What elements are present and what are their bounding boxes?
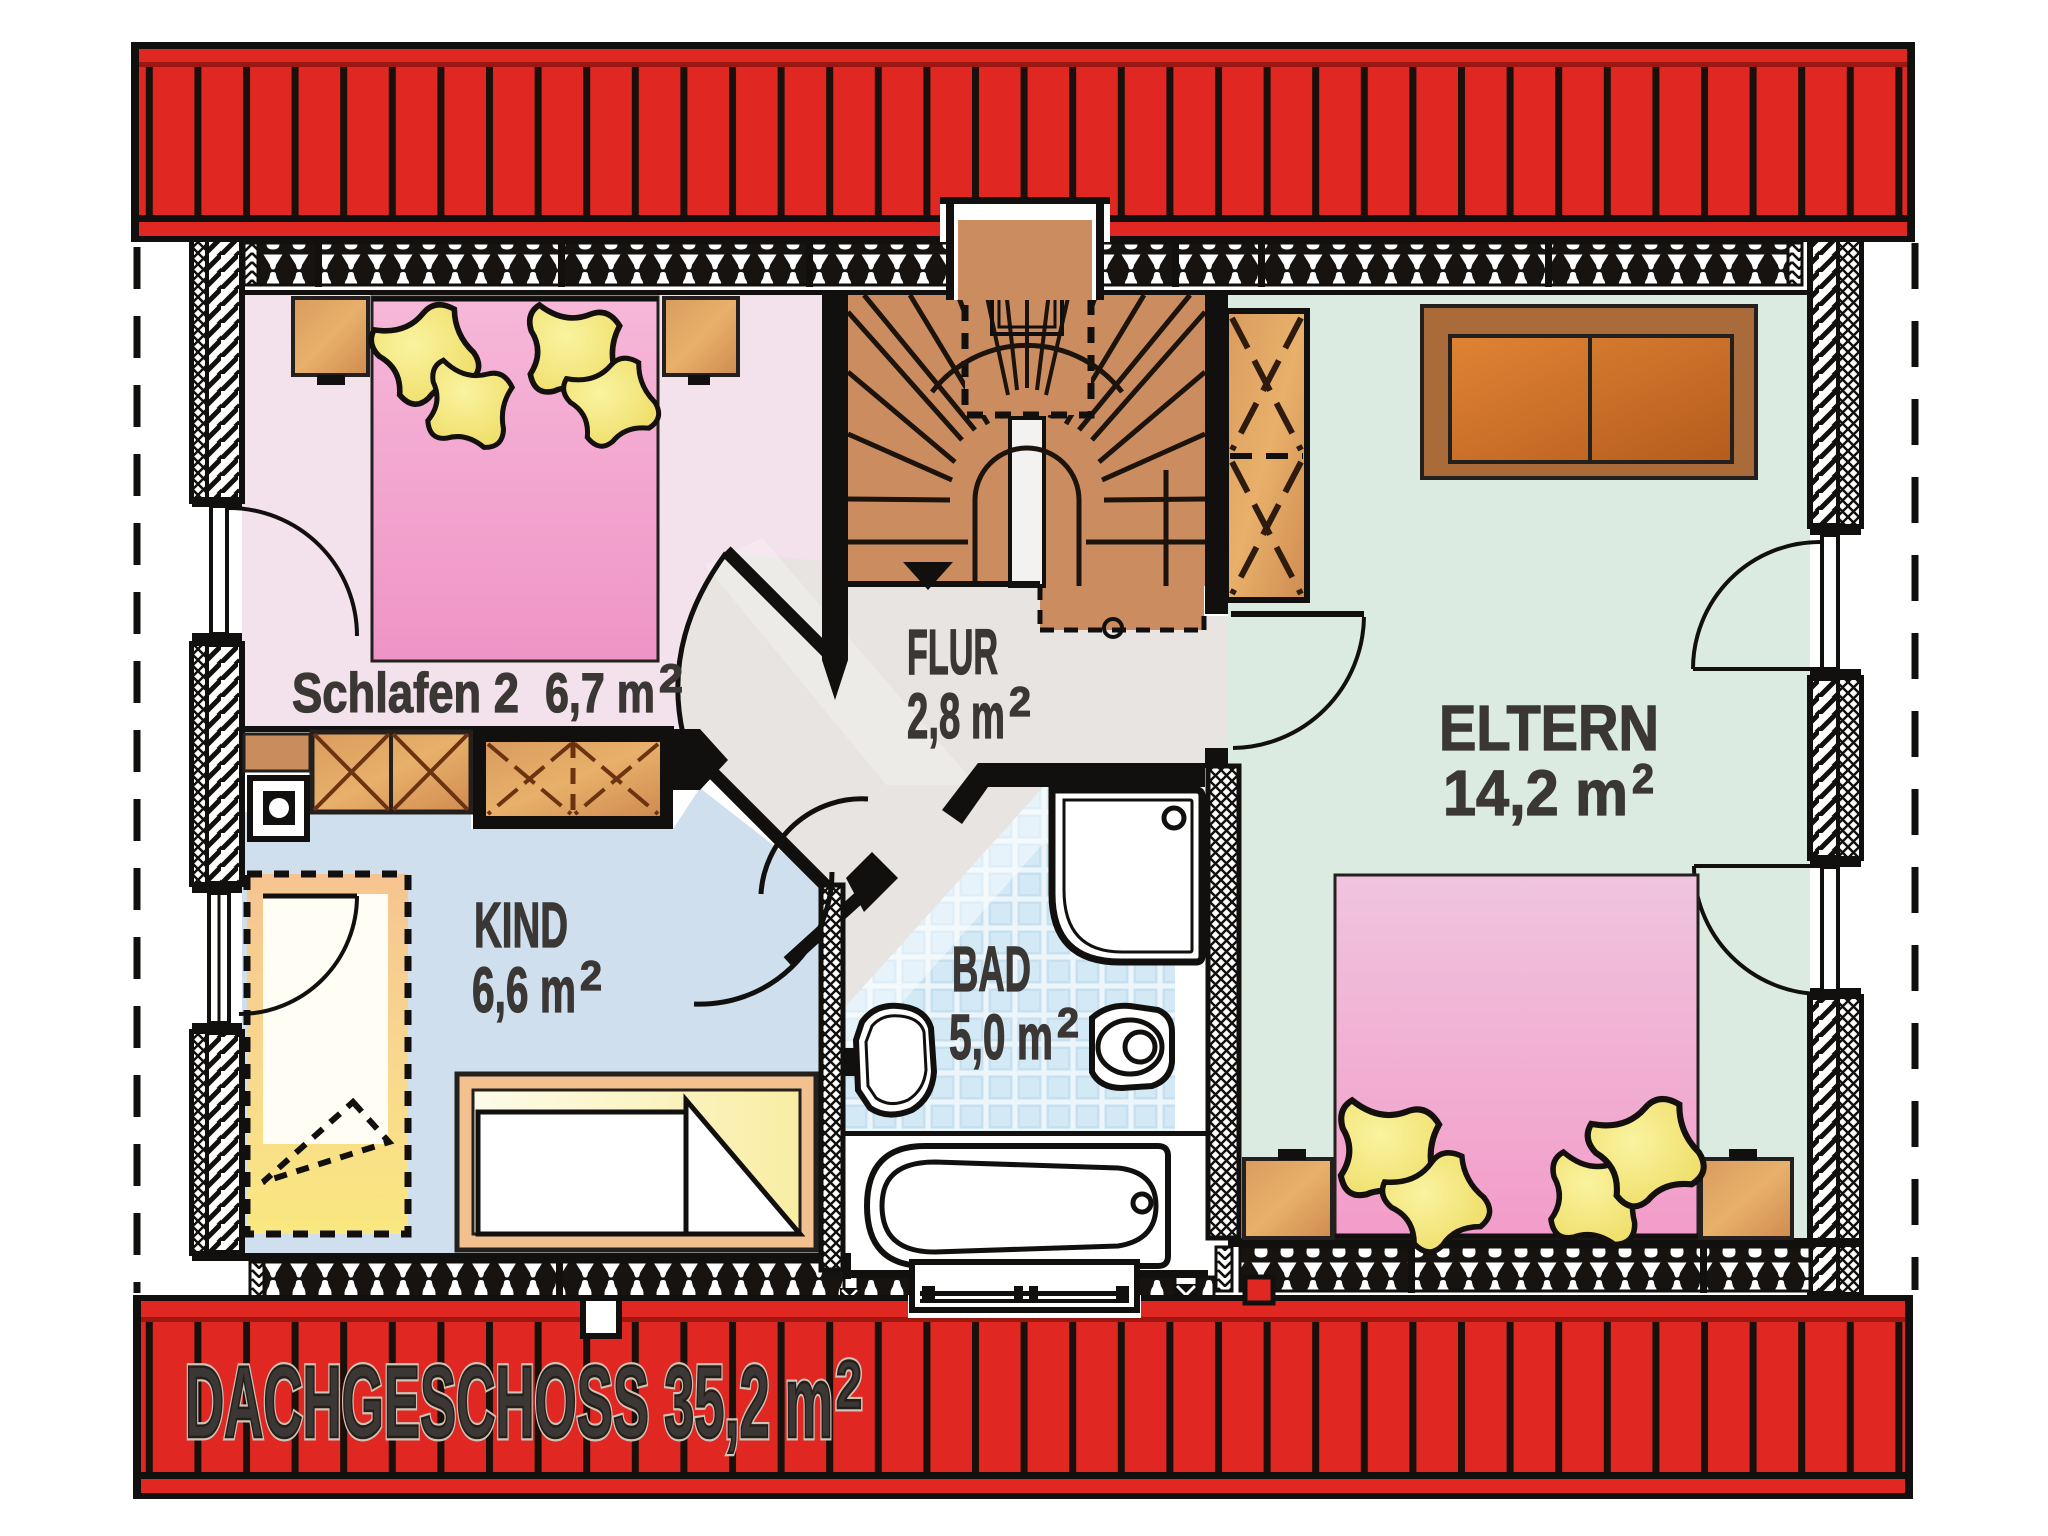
svg-text:DACHGESCHOSS 35,2 m: DACHGESCHOSS 35,2 m <box>185 1345 833 1459</box>
svg-text:2: 2 <box>1009 678 1031 725</box>
svg-text:Schlafen 2: Schlafen 2 <box>292 661 519 724</box>
svg-text:ELTERN: ELTERN <box>1439 692 1659 764</box>
svg-text:6,6 m: 6,6 m <box>472 954 576 1026</box>
svg-text:2: 2 <box>836 1347 862 1423</box>
svg-text:2: 2 <box>580 952 602 999</box>
svg-text:KIND: KIND <box>474 889 568 961</box>
svg-text:2: 2 <box>1057 999 1079 1046</box>
svg-text:5,0 m: 5,0 m <box>949 1001 1053 1073</box>
svg-text:6,7 m: 6,7 m <box>545 661 655 724</box>
svg-text:FLUR: FLUR <box>907 616 998 688</box>
svg-text:2,8 m: 2,8 m <box>907 680 1005 752</box>
svg-text:14,2 m: 14,2 m <box>1443 757 1628 829</box>
svg-text:2: 2 <box>1632 755 1654 802</box>
svg-text:BAD: BAD <box>952 933 1031 1005</box>
svg-text:2: 2 <box>659 657 683 701</box>
